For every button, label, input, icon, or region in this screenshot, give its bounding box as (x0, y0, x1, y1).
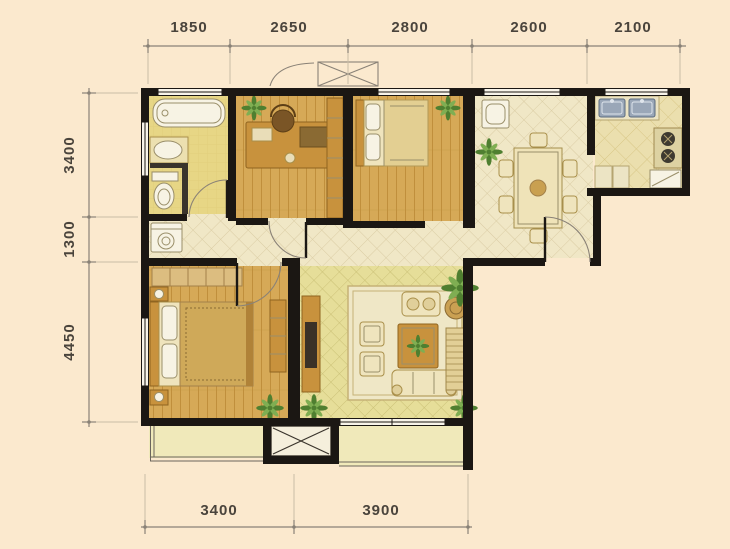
dim-bottom-3400: 3400 (200, 502, 237, 519)
bed-top-headboard (356, 100, 364, 166)
bed-top-blanket (384, 100, 428, 166)
dimension-left-ticks (82, 91, 138, 424)
dim-top-2600: 2600 (510, 19, 547, 36)
window-living-balcony (340, 419, 445, 426)
armchair (360, 322, 384, 346)
wall-kitchen-west (587, 88, 595, 155)
wall-study-east (343, 88, 353, 228)
wall-bathroom-south (141, 214, 187, 221)
vanity-sink (150, 137, 188, 163)
dining-chair (563, 196, 577, 213)
wall-dining-east (593, 188, 601, 266)
toilet-niche-partition-side (182, 168, 188, 214)
nightstand (150, 287, 168, 301)
dimension-top: 1850 2650 2800 2600 2100 (143, 19, 686, 84)
dim-top-1850: 1850 (170, 19, 207, 36)
wardrobe (152, 268, 242, 286)
dining-chair (563, 160, 577, 177)
wall-kitchen-east (682, 88, 690, 196)
wall-shaft-bottom (263, 456, 339, 464)
dim-left-3400: 3400 (61, 136, 78, 173)
stove (654, 128, 682, 168)
kitchen-counter-corner (650, 170, 681, 188)
dimension-left: 3400 1300 4450 (61, 88, 138, 427)
dining-chair (499, 160, 513, 177)
dim-top-2650: 2650 (270, 19, 307, 36)
ac-platform (270, 62, 378, 86)
window-bedroom-top (378, 89, 450, 96)
bed-master-blanket (180, 302, 253, 386)
wall-kitchen-south (587, 188, 690, 196)
window-bathroom-top (158, 89, 222, 96)
wall-master-north-a (141, 258, 237, 266)
dim-left-1300: 1300 (61, 220, 78, 257)
nightstand (150, 390, 168, 405)
vent-shaft (271, 426, 331, 456)
pillow (162, 344, 177, 378)
tv-cabinet (302, 296, 320, 392)
wall-study-south-b (306, 218, 343, 225)
dining-chair (530, 133, 547, 147)
dim-top-2800: 2800 (391, 19, 428, 36)
dimension-bottom-ticks (143, 474, 470, 534)
balcony-left-floor (149, 426, 263, 458)
refrigerator (482, 100, 509, 128)
pillow (366, 104, 380, 130)
table-centerpiece (530, 180, 546, 196)
pillow (162, 306, 177, 340)
balcony-right-floor (339, 426, 463, 466)
loveseat (402, 292, 440, 316)
bookshelf (327, 98, 343, 218)
wall-bedroom-top-south (353, 221, 425, 228)
floor-plan-image: 1850 2650 2800 2600 2100 3400 1300 4450 … (0, 0, 730, 549)
kitchen-counter-low (613, 166, 629, 188)
wall-entry-south-corner (590, 258, 601, 266)
wall-living-east (463, 258, 473, 470)
dim-bottom-3900: 3900 (362, 502, 399, 519)
floor-plan-svg: 1850 2650 2800 2600 2100 3400 1300 4450 … (0, 0, 730, 549)
dim-top-2100: 2100 (614, 19, 651, 36)
dining-chair (499, 196, 513, 213)
kitchen-counter-low (595, 166, 612, 188)
dimension-bottom: 3400 3900 (141, 474, 472, 534)
dresser (270, 300, 286, 372)
window-master-left (142, 318, 149, 386)
bed-master-footboard (246, 302, 253, 386)
wall-bedroom-top-east (463, 88, 475, 228)
window-bathroom-left (142, 122, 149, 176)
wall-master-east (288, 258, 300, 420)
tv (305, 322, 317, 368)
toilet-niche-partition (150, 163, 188, 168)
window-kitchen-top (605, 89, 668, 96)
wall-study-south-a (236, 218, 268, 225)
bed-master (150, 302, 253, 386)
washing-machine (151, 223, 182, 252)
bathtub (153, 99, 225, 127)
window-dining-top (484, 89, 560, 96)
armchair (360, 352, 384, 376)
dim-left-4450: 4450 (61, 323, 78, 360)
pillow (366, 134, 380, 160)
bed-master-headboard (150, 302, 159, 386)
wall-entry-south (473, 258, 545, 266)
wall-bathroom-east (228, 88, 236, 221)
